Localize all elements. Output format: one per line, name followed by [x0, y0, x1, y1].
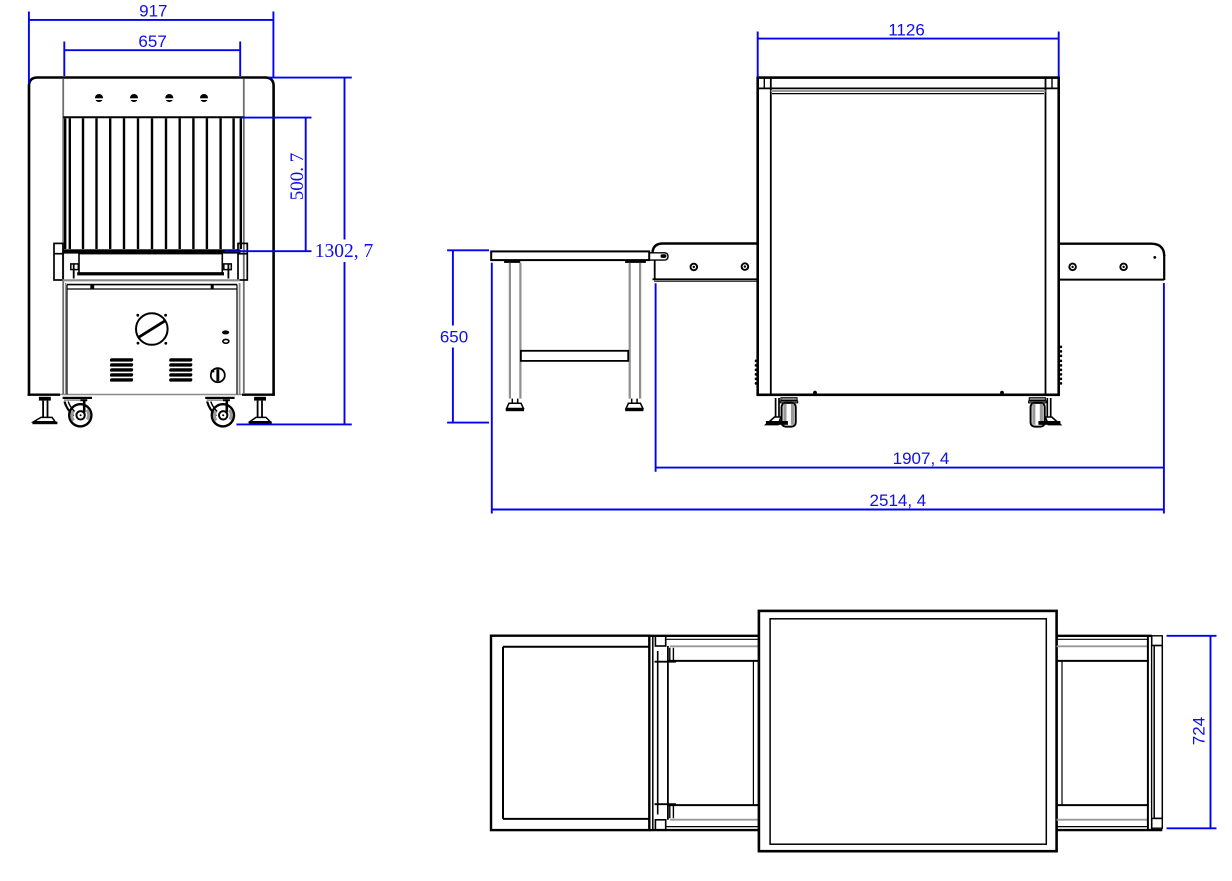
svg-text:1907, 4: 1907, 4	[893, 449, 950, 468]
svg-text:724: 724	[1190, 717, 1209, 745]
svg-text:1302, 7: 1302, 7	[315, 241, 374, 262]
svg-text:1126: 1126	[888, 20, 925, 39]
svg-text:650: 650	[440, 327, 468, 346]
svg-text:657: 657	[138, 32, 166, 51]
svg-text:2514, 4: 2514, 4	[870, 491, 927, 510]
svg-text:917: 917	[139, 2, 167, 21]
svg-text:500. 7: 500. 7	[287, 153, 308, 201]
